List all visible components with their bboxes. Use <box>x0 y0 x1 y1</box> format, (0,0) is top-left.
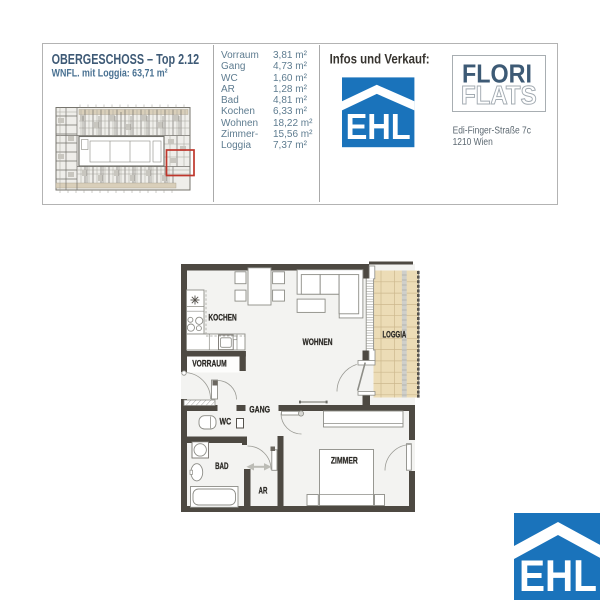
svg-text:1210 Wien: 1210 Wien <box>453 137 493 148</box>
svg-text:BAD: BAD <box>215 461 229 471</box>
svg-text:VORRAUM: VORRAUM <box>192 359 227 369</box>
svg-text:LOGGIA: LOGGIA <box>383 330 407 340</box>
svg-text:AR: AR <box>259 486 268 496</box>
svg-text:FLATS: FLATS <box>461 80 537 110</box>
svg-text:KOCHEN: KOCHEN <box>208 312 236 322</box>
svg-text:WNFL. mit Loggia: 63,71 m²: WNFL. mit Loggia: 63,71 m² <box>52 67 168 79</box>
svg-text:EHL: EHL <box>519 552 597 600</box>
svg-text:WC: WC <box>220 417 232 427</box>
svg-text:OBERGESCHOSS – Top 2.12: OBERGESCHOSS – Top 2.12 <box>52 52 200 68</box>
svg-text:WOHNEN: WOHNEN <box>303 337 333 347</box>
svg-text:ZIMMER: ZIMMER <box>331 456 358 466</box>
svg-text:GANG: GANG <box>249 405 270 415</box>
svg-text:Infos und Verkauf:: Infos und Verkauf: <box>330 52 430 67</box>
svg-text:Edi-Finger-Straße 7c: Edi-Finger-Straße 7c <box>453 126 531 137</box>
svg-text:EHL: EHL <box>346 107 411 147</box>
